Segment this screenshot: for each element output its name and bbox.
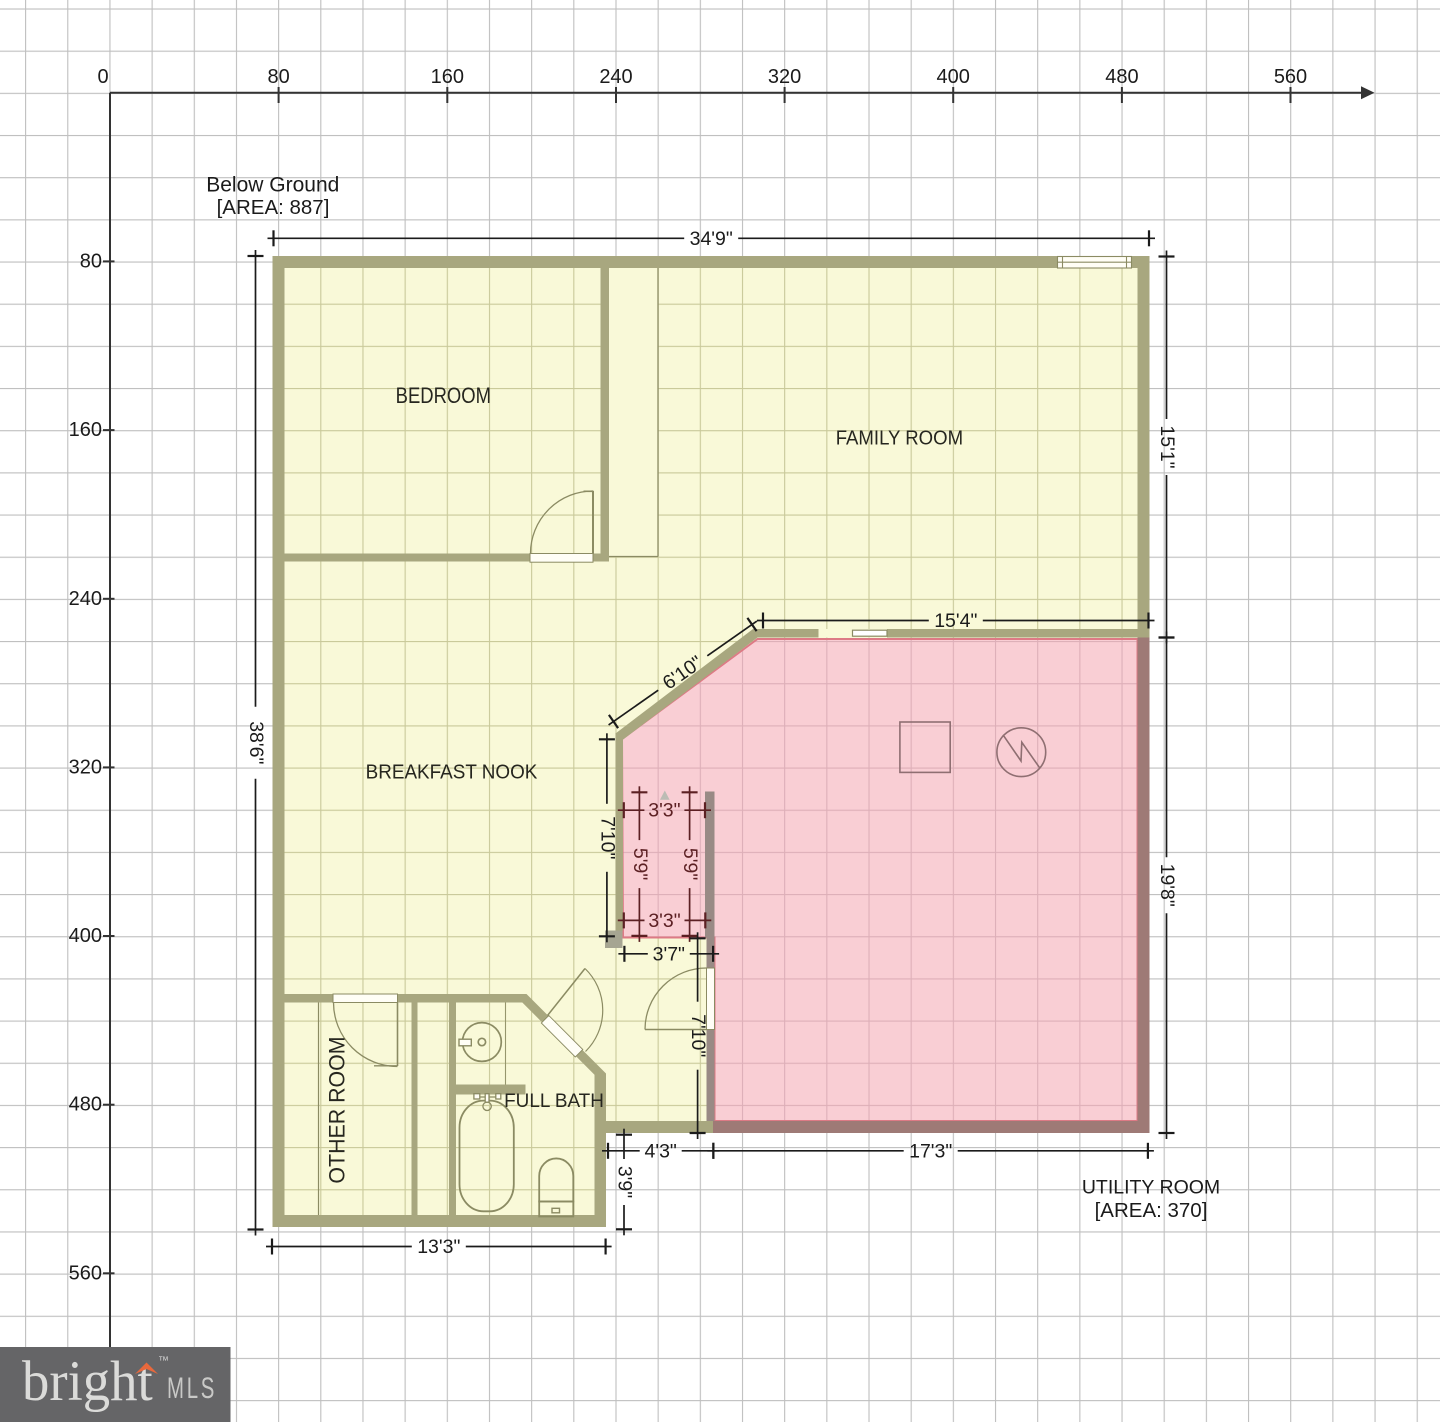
svg-text:560: 560 [1274,66,1307,88]
svg-text:480: 480 [69,1094,102,1116]
svg-text:320: 320 [69,756,102,778]
svg-text:240: 240 [69,588,102,610]
svg-text:3'9": 3'9" [614,1166,636,1198]
svg-text:UTILITY ROOM: UTILITY ROOM [1082,1177,1220,1199]
svg-text:13'3": 13'3" [417,1236,460,1258]
svg-text:7'10": 7'10" [687,1014,709,1057]
svg-text:19'8": 19'8" [1156,864,1178,907]
svg-text:7'10": 7'10" [596,816,618,859]
svg-text:400: 400 [69,925,102,947]
svg-text:160: 160 [431,66,464,88]
svg-text:15'4": 15'4" [934,610,977,632]
svg-text:15'1": 15'1" [1156,425,1178,468]
svg-text:34'9": 34'9" [690,228,733,250]
svg-text:38'6": 38'6" [245,721,267,764]
svg-text:480: 480 [1105,66,1138,88]
svg-text:bright: bright [22,1350,153,1413]
svg-text:OTHER ROOM: OTHER ROOM [324,1036,350,1183]
svg-text:560: 560 [69,1262,102,1284]
svg-text:5'9": 5'9" [629,848,651,880]
svg-text:400: 400 [937,66,970,88]
svg-text:320: 320 [768,66,801,88]
svg-text:[AREA: 370]: [AREA: 370] [1095,1199,1208,1222]
svg-text:160: 160 [69,419,102,441]
svg-text:BREAKFAST NOOK: BREAKFAST NOOK [366,761,538,784]
svg-text:[AREA: 887]: [AREA: 887] [217,196,330,219]
svg-text:3'3": 3'3" [648,910,680,932]
svg-text:5'9": 5'9" [679,848,701,880]
svg-text:3'3": 3'3" [648,800,680,822]
svg-text:Below Ground: Below Ground [206,174,339,197]
svg-text:0: 0 [97,66,108,88]
svg-text:80: 80 [267,66,289,88]
svg-text:17'3": 17'3" [909,1140,952,1162]
svg-text:80: 80 [80,250,102,272]
svg-text:FAMILY ROOM: FAMILY ROOM [836,428,963,450]
svg-text:3'7": 3'7" [653,943,685,965]
svg-text:MLS: MLS [167,1372,217,1405]
svg-text:FULL BATH: FULL BATH [504,1091,604,1112]
svg-text:™: ™ [158,1355,169,1367]
svg-text:240: 240 [599,66,632,88]
svg-text:BEDROOM: BEDROOM [396,383,491,408]
svg-text:4'3": 4'3" [645,1140,677,1162]
